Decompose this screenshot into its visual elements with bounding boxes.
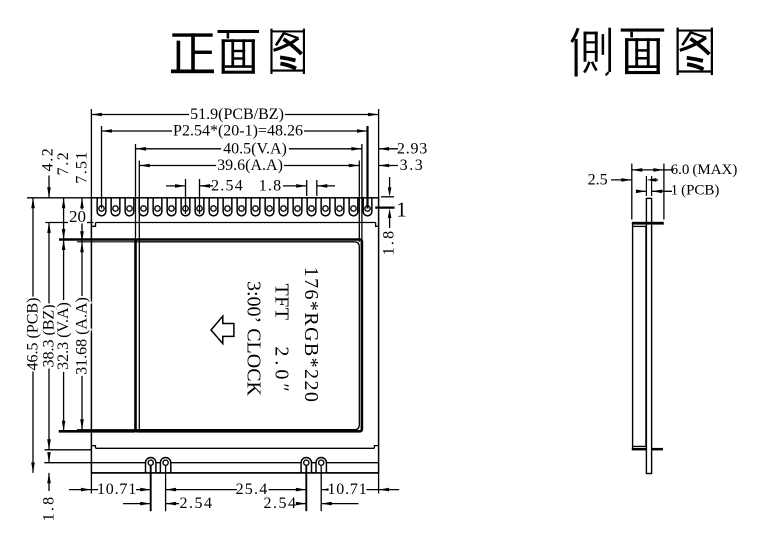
svg-text:20: 20 bbox=[69, 207, 86, 226]
svg-text:39.6(A.A): 39.6(A.A) bbox=[217, 157, 283, 174]
svg-text:1 (PCB): 1 (PCB) bbox=[671, 183, 720, 199]
svg-text:1: 1 bbox=[396, 198, 407, 222]
svg-text:46.5 (PCB): 46.5 (PCB) bbox=[25, 298, 42, 371]
svg-text:32.3 (V.A): 32.3 (V.A) bbox=[55, 302, 72, 370]
svg-text:7.51: 7.51 bbox=[74, 150, 91, 183]
svg-text:4.2: 4.2 bbox=[40, 147, 57, 172]
svg-text:1.8: 1.8 bbox=[259, 177, 283, 194]
svg-text:2.5: 2.5 bbox=[588, 171, 608, 188]
svg-text:3:00’ CLOCK: 3:00’ CLOCK bbox=[243, 281, 265, 397]
svg-text:51.9(PCB/BZ): 51.9(PCB/BZ) bbox=[190, 106, 284, 123]
svg-text:2.54: 2.54 bbox=[211, 177, 244, 194]
svg-text:10.71: 10.71 bbox=[97, 481, 137, 498]
svg-text:1.8: 1.8 bbox=[41, 495, 58, 522]
svg-text:3.3: 3.3 bbox=[400, 157, 425, 174]
svg-text:TFT: TFT bbox=[271, 283, 293, 320]
svg-text:1.8: 1.8 bbox=[380, 229, 397, 256]
svg-text:6.0 (MAX): 6.0 (MAX) bbox=[671, 162, 738, 178]
svg-text:10.71: 10.71 bbox=[328, 481, 368, 498]
svg-text:2.93: 2.93 bbox=[397, 140, 428, 157]
svg-text:2.54: 2.54 bbox=[264, 495, 298, 512]
svg-text:31.68 (A.A): 31.68 (A.A) bbox=[74, 297, 91, 375]
svg-text:176*RGB*220: 176*RGB*220 bbox=[300, 267, 322, 404]
svg-text:2.0″: 2.0″ bbox=[271, 346, 293, 395]
svg-text:2.54: 2.54 bbox=[180, 495, 214, 512]
svg-text:40.5(V.A): 40.5(V.A) bbox=[223, 140, 287, 157]
svg-text:7.2: 7.2 bbox=[55, 151, 72, 176]
svg-text:P2.54*(20-1)=48.26: P2.54*(20-1)=48.26 bbox=[173, 123, 303, 140]
